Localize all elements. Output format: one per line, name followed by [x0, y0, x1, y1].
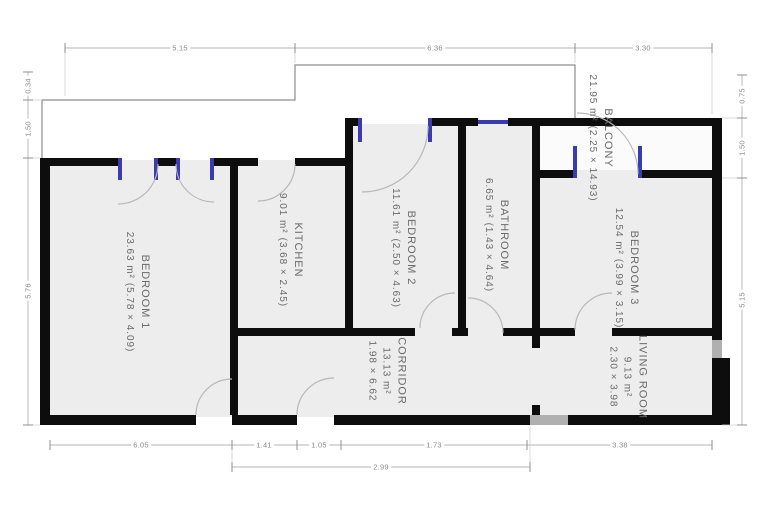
wall [334, 415, 530, 425]
window-sill [712, 340, 722, 358]
room-label-balcony: BALCONY 21.95 m²(2.25 × 14.93) [585, 74, 615, 201]
room-size: 1.98 × 6.62 [364, 337, 379, 405]
wall [238, 328, 415, 336]
wall [40, 158, 50, 425]
room-name: CORRIDOR [393, 337, 409, 405]
door-jamb [210, 158, 214, 180]
room-label-bedroom-2: BEDROOM 2 11.61 m²(2.50 × 4.63) [388, 188, 418, 308]
room-size: (1.43 × 4.64) [483, 223, 494, 292]
room-label-bathroom: BATHROOM 6.65 m²(1.43 × 4.64) [481, 178, 511, 292]
room-name: BEDROOM 1 [136, 232, 152, 353]
room-area: 23.63 m² [124, 232, 135, 279]
wall [40, 415, 196, 425]
wall [532, 118, 540, 348]
dim-right-3: 5.15 [738, 290, 747, 310]
room-name: KITCHEN [289, 193, 305, 307]
room-size: (5.78 × 4.09) [124, 283, 135, 352]
dim-left-1: 0.34 [24, 76, 33, 96]
room-size: (3.99 × 3.15) [613, 259, 624, 328]
floorplan-drawing [0, 0, 760, 507]
wall [295, 158, 353, 166]
dim-right-1: 0.75 [738, 86, 747, 106]
bathroom-window [478, 120, 508, 124]
dim-bottom-2: 1.41 [254, 441, 274, 450]
door-jamb [118, 158, 122, 180]
door-jamb [638, 146, 642, 178]
room-name: BEDROOM 2 [402, 188, 418, 308]
dim-bottom-1: 6.05 [131, 441, 151, 450]
room-label-living-room: LIVING ROOM 9.13 m² 2.30 × 3.98 [605, 335, 650, 419]
room-area: 9.13 m² [619, 335, 634, 419]
room-name: BALCONY [599, 74, 615, 201]
wall [232, 415, 297, 425]
room-size: (2.50 × 4.63) [390, 238, 401, 307]
wall [40, 158, 118, 166]
room-area: 11.61 m² [390, 188, 401, 234]
wall [432, 118, 478, 126]
wall [722, 358, 730, 425]
room-label-corridor: CORRIDOR 13.13 m² 1.98 × 6.62 [364, 337, 409, 405]
wall [345, 118, 353, 328]
dim-bottom-4: 1.73 [424, 441, 444, 450]
dim-left-2: 1.50 [24, 119, 33, 139]
dim-left-3: 5.76 [24, 281, 33, 301]
wall [712, 358, 722, 425]
room-label-bedroom-1: BEDROOM 1 23.63 m²(5.78 × 4.09) [122, 232, 152, 353]
room-label-bedroom-3: BEDROOM 3 12.54 m²(3.99 × 3.15) [611, 208, 641, 329]
wall [458, 118, 466, 328]
wall [158, 158, 176, 166]
dim-top-1: 5.15 [170, 44, 190, 53]
dim-top-2: 6.36 [425, 44, 445, 53]
room-size: (3.68 × 2.45) [277, 238, 288, 307]
dim-bottom-5: 3.38 [610, 441, 630, 450]
wall [230, 158, 238, 415]
wall [712, 118, 722, 340]
room-name: BEDROOM 3 [625, 208, 641, 329]
window-sill [530, 415, 568, 425]
dim-bottom-3: 1.05 [309, 441, 329, 450]
room-name: LIVING ROOM [634, 335, 650, 419]
room-size: (2.25 × 14.93) [587, 126, 598, 202]
wall [532, 405, 540, 415]
wall [503, 328, 532, 336]
wall [638, 170, 712, 178]
door-jamb [573, 146, 577, 178]
dim-bottom-overall: 2.99 [371, 463, 391, 472]
room-name: BATHROOM [495, 178, 511, 292]
wall [540, 328, 575, 336]
room-size: 2.30 × 3.98 [605, 335, 620, 419]
wall [452, 328, 468, 336]
dim-top-3: 3.30 [633, 44, 653, 53]
room-label-kitchen: KITCHEN 9.01 m²(3.68 × 2.45) [275, 193, 305, 307]
door-jamb [358, 118, 362, 142]
room-area: 12.54 m² [613, 208, 624, 255]
door-jamb [428, 118, 432, 142]
room-fill [351, 124, 534, 168]
room-area: 6.65 m² [483, 178, 494, 219]
room-area: 9.01 m² [277, 193, 288, 234]
room-area: 13.13 m² [378, 337, 393, 405]
balcony-fill [540, 126, 712, 170]
dim-right-2: 1.50 [738, 138, 747, 158]
room-area: 21.95 m² [587, 74, 598, 121]
floorplan-canvas: BEDROOM 1 23.63 m²(5.78 × 4.09) KITCHEN … [0, 0, 760, 507]
